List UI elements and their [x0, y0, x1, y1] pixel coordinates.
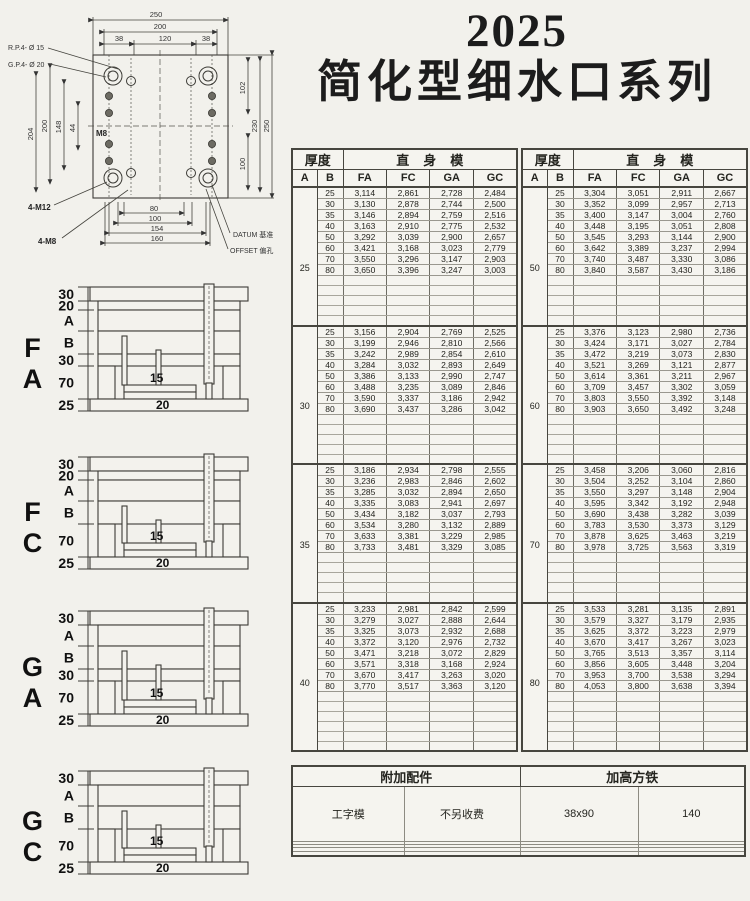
price-cell: 3,733 — [343, 542, 386, 553]
price-cell: 3,263 — [430, 669, 473, 680]
price-cell: 2,990 — [430, 370, 473, 381]
price-row: 353,4723,2193,0732,830 — [522, 348, 747, 359]
label-4m12: 4-M12 — [28, 203, 51, 212]
price-cell: 3,060 — [660, 464, 703, 476]
empty-row — [292, 434, 517, 444]
price-cell: 3,144 — [660, 232, 703, 243]
price-cell: 3,392 — [660, 392, 703, 403]
dim-154: 154 — [151, 224, 164, 233]
thickness-b-value: 30 — [317, 337, 343, 348]
price-row: 403,4483,1953,0512,808 — [522, 221, 747, 232]
price-cell: 3,595 — [573, 498, 616, 509]
empty-row — [292, 296, 517, 306]
accessories-table: 附加配件加高方铁工字模不另收费38x90140 — [291, 765, 746, 857]
header-col-fa: FA — [343, 170, 386, 188]
price-cell: 2,846 — [473, 381, 517, 392]
price-cell: 3,534 — [343, 520, 386, 531]
price-cell: 2,769 — [430, 326, 473, 338]
plate-dim-label: A — [64, 313, 74, 329]
price-cell: 3,099 — [617, 199, 660, 210]
header-straight-mold: 直身模 — [573, 149, 747, 170]
thickness-b-value: 30 — [547, 337, 573, 348]
price-cell: 3,135 — [660, 603, 703, 615]
price-cell: 3,605 — [617, 658, 660, 669]
price-row: 603,7093,4573,3023,059 — [522, 381, 747, 392]
price-cell: 3,020 — [473, 669, 517, 680]
thickness-b-value: 60 — [317, 381, 343, 392]
empty-row — [522, 414, 747, 424]
price-cell: 3,417 — [387, 669, 430, 680]
price-cell: 3,363 — [430, 680, 473, 691]
return-pin-hole — [187, 169, 196, 178]
return-pin-hole — [127, 77, 136, 86]
price-cell: 3,978 — [573, 542, 616, 553]
header-col-ga: GA — [430, 170, 473, 188]
plate-outline — [93, 55, 228, 198]
price-cell: 2,759 — [430, 210, 473, 221]
price-row: 40253,2332,9812,8422,599 — [292, 603, 517, 615]
plate-dim-label: 20 — [58, 468, 74, 484]
price-cell: 3,059 — [703, 381, 747, 392]
mold-section-svg: 3020AB70251520 — [34, 452, 259, 575]
dim-15: 15 — [150, 371, 164, 385]
price-cell: 3,073 — [660, 348, 703, 359]
thickness-b-value: 40 — [317, 359, 343, 370]
price-cell: 3,396 — [387, 265, 430, 276]
thickness-b-value: 70 — [547, 531, 573, 542]
price-cell: 3,800 — [617, 680, 660, 691]
price-cell: 3,633 — [343, 531, 386, 542]
thickness-a-value: 50 — [522, 187, 547, 326]
price-cell: 2,877 — [703, 359, 747, 370]
price-cell: 2,994 — [703, 243, 747, 254]
price-cell: 3,670 — [343, 669, 386, 680]
price-cell: 2,948 — [703, 498, 747, 509]
price-cell: 3,237 — [660, 243, 703, 254]
empty-row — [292, 454, 517, 464]
dim-38-right: 38 — [202, 34, 210, 43]
thickness-b-value: 40 — [317, 636, 343, 647]
price-row: 353,1462,8942,7592,516 — [292, 210, 517, 221]
thickness-b-value: 70 — [547, 392, 573, 403]
dim-250-right: 250 — [262, 120, 271, 133]
dim-80: 80 — [150, 204, 158, 213]
price-cell: 2,842 — [430, 603, 473, 615]
price-cell: 3,148 — [703, 392, 747, 403]
price-cell: 3,590 — [343, 392, 386, 403]
thickness-b-value: 25 — [317, 187, 343, 199]
thickness-b-value: 80 — [547, 265, 573, 276]
empty-row — [292, 316, 517, 326]
price-row: 403,5953,3423,1922,948 — [522, 498, 747, 509]
price-cell: 2,846 — [430, 476, 473, 487]
thickness-b-value: 25 — [547, 603, 573, 615]
price-cell: 2,894 — [430, 487, 473, 498]
accessories-row: 工字模不另收费38x90140 — [292, 787, 745, 842]
empty-row — [292, 286, 517, 296]
price-row: 70253,4583,2063,0602,816 — [522, 464, 747, 476]
dim-20: 20 — [156, 713, 170, 727]
price-cell: 2,860 — [703, 476, 747, 487]
price-cell: 2,760 — [703, 210, 747, 221]
price-row: 353,3253,0732,9322,688 — [292, 625, 517, 636]
price-cell: 2,891 — [703, 603, 747, 615]
price-row: 50253,3043,0512,9112,667 — [522, 187, 747, 199]
price-cell: 3,219 — [617, 348, 660, 359]
price-cell: 3,400 — [573, 210, 616, 221]
thickness-b-value: 35 — [317, 210, 343, 221]
dim-160: 160 — [151, 234, 164, 243]
price-table-left: 厚度直身模ABFAFCGAGC25253,1142,8612,7282,4843… — [291, 148, 518, 752]
price-row: 303,5793,3273,1792,935 — [522, 614, 747, 625]
thickness-b-value: 60 — [547, 381, 573, 392]
price-cell: 3,133 — [387, 370, 430, 381]
plate-dim-label: 25 — [58, 712, 74, 728]
plate-dim-label: 70 — [58, 375, 74, 391]
price-cell: 3,168 — [387, 243, 430, 254]
price-cell: 3,448 — [573, 221, 616, 232]
price-cell: 3,372 — [617, 625, 660, 636]
price-row: 603,5713,3183,1682,924 — [292, 658, 517, 669]
price-cell: 2,878 — [387, 199, 430, 210]
thickness-b-value: 80 — [547, 403, 573, 414]
header-col-b: B — [317, 170, 343, 188]
price-cell: 2,602 — [473, 476, 517, 487]
thickness-b-value: 80 — [547, 542, 573, 553]
dim-38-left: 38 — [115, 34, 123, 43]
plate-dim-label: B — [64, 505, 74, 521]
i-beam-mold-label: 工字模 — [292, 787, 404, 842]
price-cell: 2,830 — [703, 348, 747, 359]
price-cell: 2,861 — [387, 187, 430, 199]
riser-size-value: 38x90 — [520, 787, 638, 842]
price-cell: 3,297 — [617, 487, 660, 498]
price-row: 803,7703,5173,3633,120 — [292, 680, 517, 691]
price-cell: 2,649 — [473, 359, 517, 370]
price-cell: 3,282 — [660, 509, 703, 520]
price-row: 303,3523,0992,9572,713 — [522, 199, 747, 210]
price-cell: 3,550 — [573, 487, 616, 498]
price-cell: 3,389 — [617, 243, 660, 254]
price-cell: 3,550 — [617, 392, 660, 403]
empty-row — [522, 276, 747, 286]
price-cell: 2,525 — [473, 326, 517, 338]
price-cell: 2,981 — [387, 603, 430, 615]
price-cell: 2,793 — [473, 509, 517, 520]
price-row: 703,9533,7003,5383,294 — [522, 669, 747, 680]
price-cell: 3,533 — [573, 603, 616, 615]
empty-row — [292, 563, 517, 573]
thickness-b-value: 30 — [317, 199, 343, 210]
price-cell: 3,471 — [343, 647, 386, 658]
plate-dim-label: 30 — [58, 610, 74, 626]
dim-102: 102 — [238, 82, 247, 95]
price-row: 703,6333,3813,2292,985 — [292, 531, 517, 542]
thickness-b-value: 50 — [547, 232, 573, 243]
header-col-ga: GA — [660, 170, 703, 188]
price-row: 803,7333,4813,3293,085 — [292, 542, 517, 553]
thickness-b-value: 25 — [317, 464, 343, 476]
price-row: 803,6503,3963,2473,003 — [292, 265, 517, 276]
empty-row — [522, 424, 747, 434]
label-rp: R.P.4- Ø 15 — [8, 45, 44, 52]
price-cell: 2,900 — [430, 232, 473, 243]
guide-pin-hole — [199, 67, 217, 85]
dim-230: 230 — [250, 120, 259, 133]
price-cell: 3,650 — [617, 403, 660, 414]
title-year: 2025 — [288, 6, 746, 56]
price-cell: 2,650 — [473, 487, 517, 498]
price-cell: 3,129 — [703, 520, 747, 531]
price-cell: 3,457 — [617, 381, 660, 392]
price-cell: 2,989 — [387, 348, 430, 359]
riser-price-value: 140 — [638, 787, 745, 842]
price-cell: 3,337 — [387, 392, 430, 403]
price-cell: 3,280 — [387, 520, 430, 531]
thickness-b-value: 40 — [547, 221, 573, 232]
price-cell: 3,803 — [573, 392, 616, 403]
price-cell: 3,517 — [387, 680, 430, 691]
price-cell: 3,186 — [343, 464, 386, 476]
price-row: 703,5903,3373,1862,942 — [292, 392, 517, 403]
price-row: 60253,3763,1232,9802,736 — [522, 326, 747, 338]
price-cell: 3,386 — [343, 370, 386, 381]
price-row: 353,5503,2973,1482,904 — [522, 487, 747, 498]
price-cell: 3,267 — [660, 636, 703, 647]
price-cell: 3,504 — [573, 476, 616, 487]
dim-15: 15 — [150, 834, 164, 848]
mold-section-svg: 3020AB3070251520 — [34, 282, 259, 417]
price-cell: 3,171 — [617, 337, 660, 348]
price-cell: 3,642 — [573, 243, 616, 254]
price-row: 403,1632,9102,7752,532 — [292, 221, 517, 232]
empty-row — [522, 731, 747, 741]
price-cell: 3,302 — [660, 381, 703, 392]
price-cell: 2,816 — [703, 464, 747, 476]
thickness-a-value: 30 — [292, 326, 317, 465]
price-cell: 2,667 — [703, 187, 747, 199]
price-cell: 3,304 — [573, 187, 616, 199]
price-cell: 3,296 — [387, 254, 430, 265]
price-cell: 3,770 — [343, 680, 386, 691]
price-cell: 3,335 — [343, 498, 386, 509]
empty-row — [522, 316, 747, 326]
dim-120: 120 — [159, 34, 172, 43]
header-col-fa: FA — [573, 170, 616, 188]
price-cell: 3,085 — [473, 542, 517, 553]
thickness-b-value: 35 — [317, 487, 343, 498]
price-row: 803,9783,7253,5633,319 — [522, 542, 747, 553]
price-cell: 3,114 — [343, 187, 386, 199]
price-cell: 3,563 — [660, 542, 703, 553]
thickness-a-value: 70 — [522, 464, 547, 603]
price-cell: 3,550 — [343, 254, 386, 265]
thickness-b-value: 60 — [317, 658, 343, 669]
thickness-b-value: 40 — [317, 498, 343, 509]
thickness-b-value: 80 — [317, 403, 343, 414]
label-datum: DATUM 基准 — [233, 230, 273, 239]
price-cell: 3,121 — [660, 359, 703, 370]
empty-row — [292, 851, 745, 856]
price-row: 703,5503,2963,1472,903 — [292, 254, 517, 265]
price-row: 403,5213,2693,1212,877 — [522, 359, 747, 370]
thickness-b-value: 70 — [547, 669, 573, 680]
price-cell: 2,798 — [430, 464, 473, 476]
price-cell: 3,625 — [573, 625, 616, 636]
price-cell: 3,361 — [617, 370, 660, 381]
dim-44: 44 — [68, 124, 77, 132]
page-title: 2025 简化型细水口系列 — [288, 6, 746, 108]
empty-row — [522, 286, 747, 296]
price-cell: 3,182 — [387, 509, 430, 520]
price-cell: 3,032 — [387, 487, 430, 498]
price-row: 403,2843,0322,8932,649 — [292, 359, 517, 370]
dim-15: 15 — [150, 686, 164, 700]
thickness-b-value: 50 — [317, 647, 343, 658]
price-row: 503,4713,2183,0722,829 — [292, 647, 517, 658]
empty-row — [292, 583, 517, 593]
price-row: 703,8783,6253,4633,219 — [522, 531, 747, 542]
no-extra-charge-label: 不另收费 — [404, 787, 520, 842]
thickness-b-value: 35 — [317, 348, 343, 359]
price-cell: 3,218 — [387, 647, 430, 658]
price-cell: 3,492 — [660, 403, 703, 414]
price-cell: 2,784 — [703, 337, 747, 348]
thickness-b-value: 25 — [547, 326, 573, 338]
price-cell: 3,027 — [660, 337, 703, 348]
empty-row — [292, 444, 517, 454]
price-cell: 3,424 — [573, 337, 616, 348]
header-col-a: A — [292, 170, 317, 188]
price-cell: 3,123 — [617, 326, 660, 338]
price-cell: 3,083 — [387, 498, 430, 509]
thickness-b-value: 50 — [317, 509, 343, 520]
thickness-block: 50253,3043,0512,9112,667303,3523,0992,95… — [522, 187, 747, 326]
price-row: 603,4883,2353,0892,846 — [292, 381, 517, 392]
price-cell: 3,376 — [573, 326, 616, 338]
thickness-b-value: 50 — [317, 370, 343, 381]
price-cell: 2,610 — [473, 348, 517, 359]
plate-dim-label: B — [64, 650, 74, 666]
price-cell: 3,357 — [660, 647, 703, 658]
thickness-b-value: 30 — [547, 614, 573, 625]
thickness-b-value: 80 — [547, 680, 573, 691]
price-cell: 3,284 — [343, 359, 386, 370]
price-cell: 2,484 — [473, 187, 517, 199]
price-cell: 3,219 — [703, 531, 747, 542]
empty-row — [522, 721, 747, 731]
thickness-block: 40253,2332,9812,8422,599303,2793,0272,88… — [292, 603, 517, 752]
thickness-b-value: 50 — [547, 509, 573, 520]
header-col-fc: FC — [387, 170, 430, 188]
price-cell: 3,293 — [617, 232, 660, 243]
price-cell: 2,599 — [473, 603, 517, 615]
price-row: 503,4343,1823,0372,793 — [292, 509, 517, 520]
price-cell: 3,086 — [703, 254, 747, 265]
price-row: 803,9033,6503,4923,248 — [522, 403, 747, 414]
price-row: 603,8563,6053,4483,204 — [522, 658, 747, 669]
empty-row — [292, 721, 517, 731]
thickness-block: 80253,5333,2813,1352,891303,5793,3273,17… — [522, 603, 747, 752]
thickness-b-value: 80 — [317, 265, 343, 276]
price-cell: 3,625 — [617, 531, 660, 542]
price-cell: 3,004 — [660, 210, 703, 221]
thickness-b-value: 60 — [317, 243, 343, 254]
plate-dim-label: 70 — [58, 690, 74, 706]
price-cell: 3,488 — [343, 381, 386, 392]
empty-row — [292, 741, 517, 751]
price-cell: 3,325 — [343, 625, 386, 636]
price-cell: 3,670 — [573, 636, 616, 647]
price-row: 303,1302,8782,7442,500 — [292, 199, 517, 210]
price-cell: 3,650 — [343, 265, 386, 276]
price-cell: 3,163 — [343, 221, 386, 232]
price-row: 503,7653,5133,3573,114 — [522, 647, 747, 658]
price-cell: 2,516 — [473, 210, 517, 221]
price-cell: 3,032 — [387, 359, 430, 370]
plate-dim-label: A — [64, 628, 74, 644]
label-gp: G.P.4- Ø 20 — [8, 62, 45, 69]
price-cell: 3,579 — [573, 614, 616, 625]
catalog-page: { "page": { "title_year": "2025", "title… — [0, 0, 750, 900]
price-cell: 3,248 — [703, 403, 747, 414]
header-col-fc: FC — [617, 170, 660, 188]
price-row: 353,2422,9892,8542,610 — [292, 348, 517, 359]
price-cell: 2,980 — [660, 326, 703, 338]
price-cell: 3,229 — [430, 531, 473, 542]
thickness-b-value: 35 — [317, 625, 343, 636]
thickness-b-value: 70 — [317, 392, 343, 403]
price-cell: 3,783 — [573, 520, 616, 531]
price-cell: 2,688 — [473, 625, 517, 636]
price-row: 25253,1142,8612,7282,484 — [292, 187, 517, 199]
thickness-a-value: 25 — [292, 187, 317, 326]
price-cell: 2,924 — [473, 658, 517, 669]
thickness-block: 25253,1142,8612,7282,484303,1302,8782,74… — [292, 187, 517, 326]
price-cell: 3,394 — [703, 680, 747, 691]
plate-dim-label: 70 — [58, 838, 74, 854]
thickness-b-value: 70 — [317, 254, 343, 265]
thickness-a-value: 35 — [292, 464, 317, 603]
label-offset: OFFSET 偏孔 — [230, 246, 273, 255]
thickness-b-value: 30 — [317, 476, 343, 487]
price-cell: 3,211 — [660, 370, 703, 381]
price-cell: 3,051 — [617, 187, 660, 199]
price-cell: 3,120 — [387, 636, 430, 647]
header-col-a: A — [522, 170, 547, 188]
dim-20: 20 — [156, 398, 170, 412]
price-row: 503,6903,4383,2823,039 — [522, 509, 747, 520]
price-cell: 2,983 — [387, 476, 430, 487]
thickness-b-value: 60 — [317, 520, 343, 531]
price-row: 803,8403,5873,4303,186 — [522, 265, 747, 276]
price-row: 303,2793,0272,8882,644 — [292, 614, 517, 625]
price-cell: 3,242 — [343, 348, 386, 359]
thickness-b-value: 70 — [317, 531, 343, 542]
price-cell: 3,352 — [573, 199, 616, 210]
price-cell: 3,023 — [703, 636, 747, 647]
label-m8: M8 — [96, 129, 108, 138]
plate-dim-label: 30 — [58, 770, 74, 786]
thickness-b-value: 50 — [317, 232, 343, 243]
empty-row — [292, 414, 517, 424]
price-cell: 2,934 — [387, 464, 430, 476]
price-cell: 3,051 — [660, 221, 703, 232]
price-cell: 3,458 — [573, 464, 616, 476]
dim-250-top: 250 — [150, 10, 163, 19]
price-cell: 2,893 — [430, 359, 473, 370]
thickness-b-value: 35 — [547, 625, 573, 636]
